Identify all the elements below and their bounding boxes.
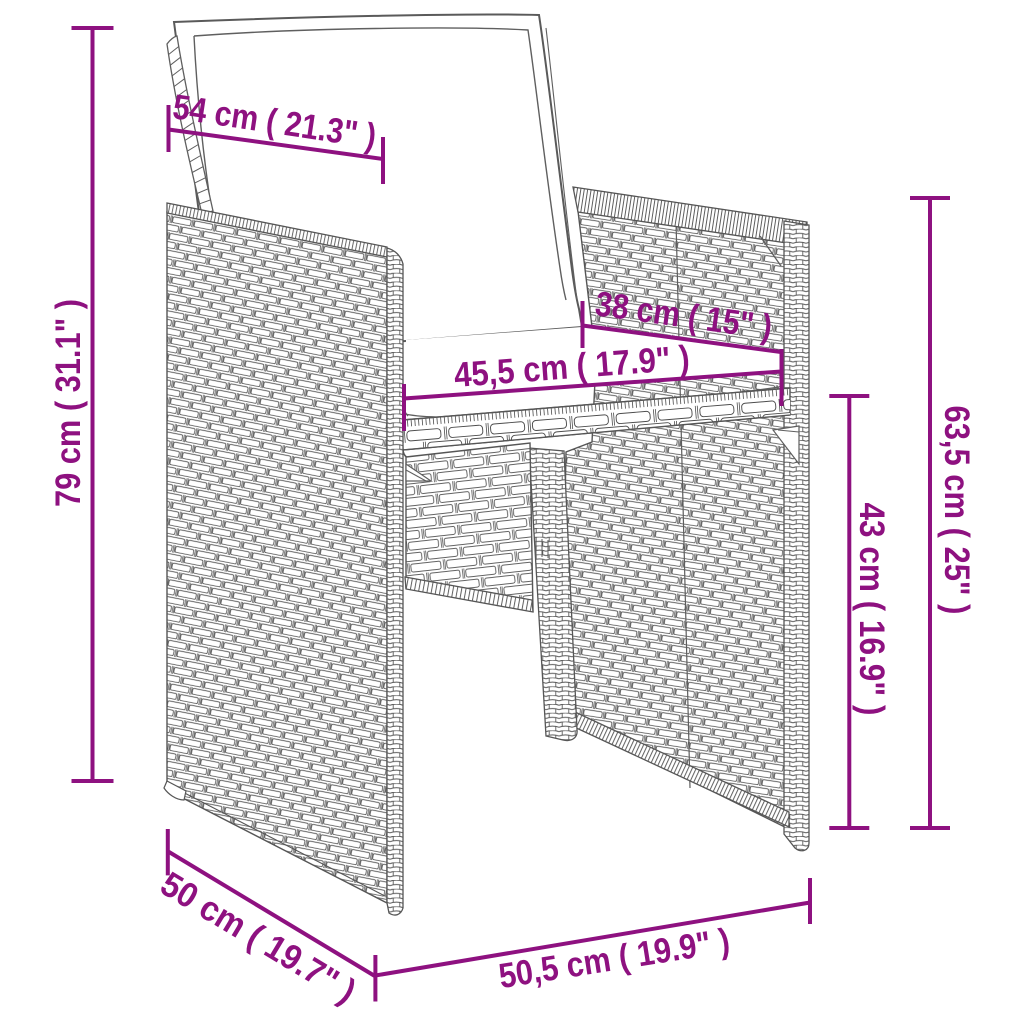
svg-text:79 cm ( 31.1" ): 79 cm ( 31.1" ) bbox=[49, 299, 88, 507]
svg-text:63,5 cm ( 25" ): 63,5 cm ( 25" ) bbox=[937, 406, 976, 615]
svg-text:43 cm ( 16.9" ): 43 cm ( 16.9" ) bbox=[852, 503, 891, 716]
